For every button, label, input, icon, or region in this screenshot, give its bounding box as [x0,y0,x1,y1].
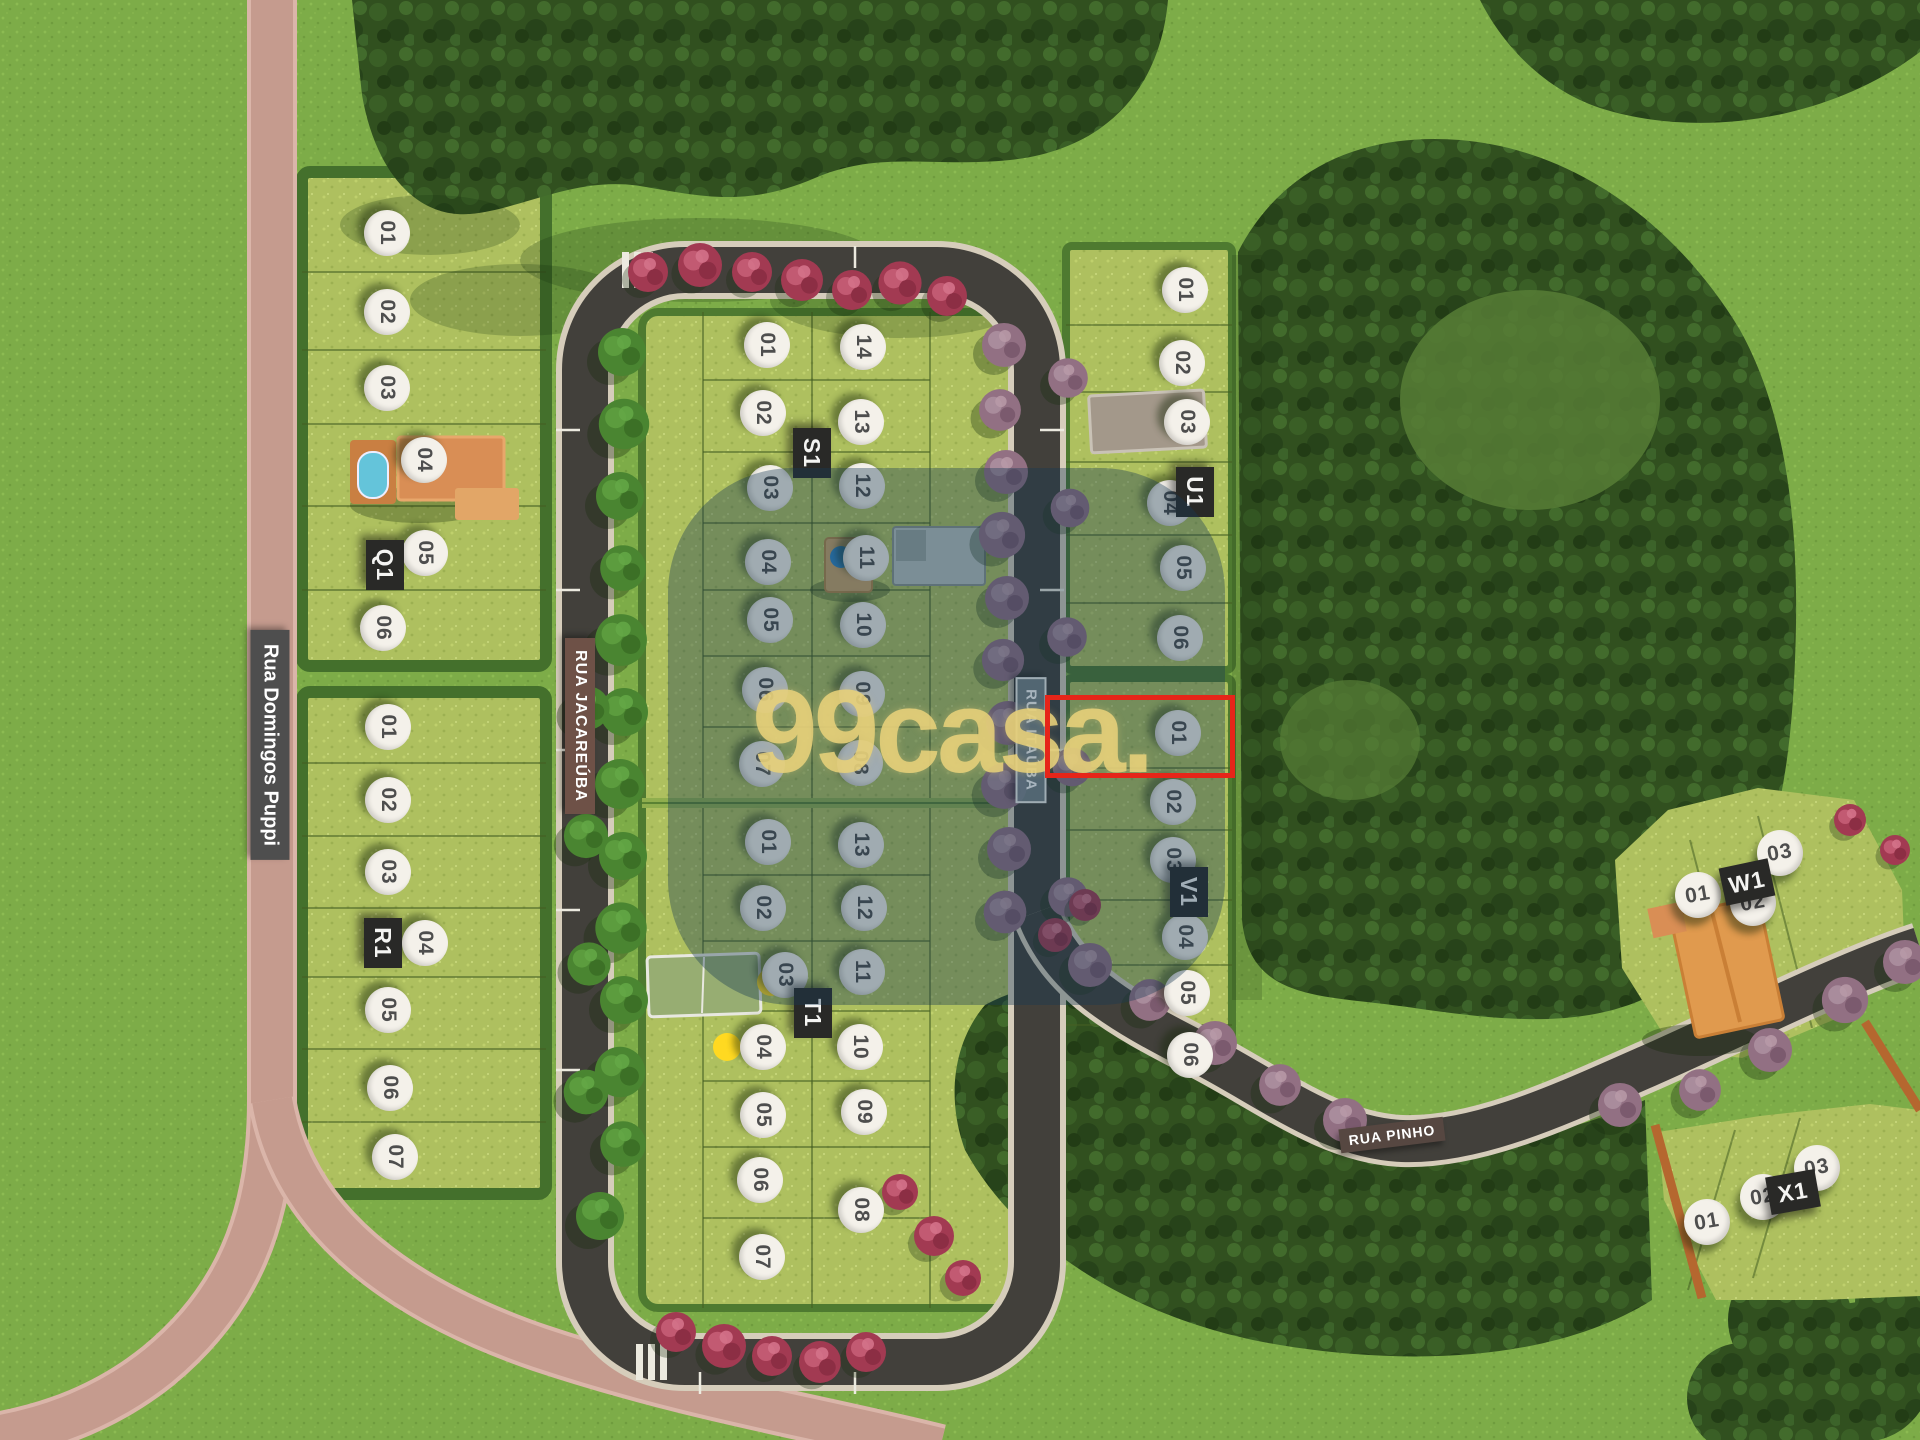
block-label-x1: X1 [1765,1169,1821,1215]
lot-badge-s1-13[interactable]: 13 [838,399,884,445]
highlighted-lot-box[interactable] [1045,695,1235,778]
lot-badge-t1-05[interactable]: 05 [740,1092,786,1138]
site-model-map: 010203040506Q101020304050607R10102030405… [0,0,1920,1440]
lot-badge-r1-05[interactable]: 05 [365,987,411,1033]
lot-badge-w1-01[interactable]: 01 [1671,868,1724,921]
lot-badge-q1-05[interactable]: 05 [402,530,448,576]
lot-badge-t1-08[interactable]: 08 [838,1187,884,1233]
lot-badge-u1-03[interactable]: 03 [1164,399,1210,445]
lot-badge-t1-06[interactable]: 06 [737,1157,783,1203]
street-sign-rua-pinho: RUA PINHO [1338,1117,1445,1154]
lot-badge-t1-07[interactable]: 07 [739,1234,785,1280]
lot-badge-q1-03[interactable]: 03 [364,365,410,411]
lot-badge-x1-01[interactable]: 01 [1680,1195,1733,1248]
lot-badge-r1-06[interactable]: 06 [367,1065,413,1111]
lot-badge-t1-09[interactable]: 09 [841,1089,887,1135]
lot-badge-r1-02[interactable]: 02 [365,777,411,823]
lot-badge-s1-01[interactable]: 01 [744,322,790,368]
lot-badge-t1-10[interactable]: 10 [837,1024,883,1070]
lot-badge-r1-07[interactable]: 07 [372,1134,418,1180]
lot-badge-r1-03[interactable]: 03 [365,849,411,895]
lot-badge-q1-04[interactable]: 04 [401,437,447,483]
lot-badge-q1-01[interactable]: 01 [364,210,410,256]
lot-badge-s1-02[interactable]: 02 [740,390,786,436]
lot-badge-r1-01[interactable]: 01 [365,704,411,750]
block-label-q1: Q1 [366,540,404,590]
lot-badge-s1-14[interactable]: 14 [840,324,886,370]
lot-badge-u1-01[interactable]: 01 [1162,267,1208,313]
lot-badge-u1-02[interactable]: 02 [1159,340,1205,386]
street-sign-rua-jacare-ba: RUA JACAREÚBA [565,638,595,814]
lot-badge-q1-06[interactable]: 06 [360,605,406,651]
street-sign-rua-domingos-puppi: Rua Domingos Puppi [251,630,290,860]
lot-badge-v1-06[interactable]: 06 [1167,1032,1213,1078]
lot-badge-q1-02[interactable]: 02 [364,289,410,335]
block-label-r1: R1 [364,918,402,968]
lot-badge-t1-04[interactable]: 04 [740,1024,786,1070]
lot-badge-r1-04[interactable]: 04 [402,920,448,966]
